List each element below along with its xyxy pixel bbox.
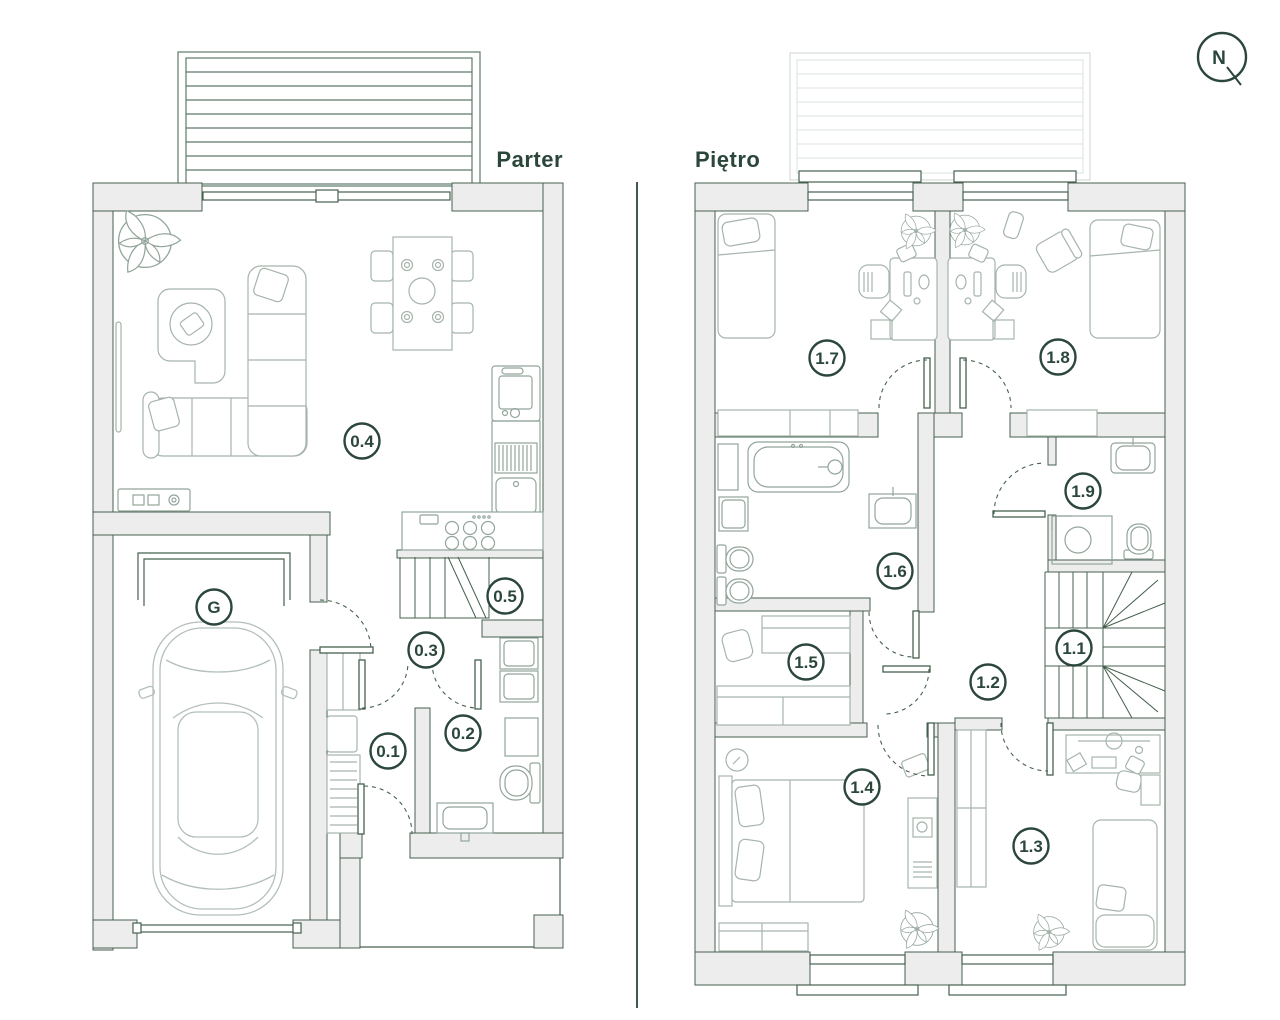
radiator [116,322,121,432]
svg-text:0.1: 0.1 [376,742,400,761]
floor-plan-canvas: 0.4 G 0.5 0.3 0.1 0.2 Parter [0,0,1280,1020]
bedroom-18 [948,210,1160,436]
svg-text:1.2: 1.2 [976,673,1000,692]
room-label-garage: G [197,590,232,625]
wardrobe [957,730,986,887]
room-label-13: 1.3 [1014,829,1049,864]
room-label-19: 1.9 [1066,474,1101,509]
door-19 [993,463,1045,517]
dining-set [371,237,473,350]
room-label-01: 0.1 [371,734,406,769]
bidet-icon [717,577,753,605]
room-label-17: 1.7 [810,341,845,376]
toilet-icon [500,763,540,803]
bed-icon [1093,820,1157,950]
desk-icon [859,243,937,340]
sink-icon [869,487,916,528]
desk-icon [948,243,1026,340]
bedroom-14 [719,749,939,951]
roof-outline [790,53,1090,180]
plant-icon [901,212,936,250]
door-01 [359,660,408,709]
terrace-sliding-door [203,190,450,202]
room-label-02: 0.2 [446,716,481,751]
parter-room-labels: 0.4 G 0.5 0.3 0.1 0.2 [197,424,523,769]
svg-text:1.4: 1.4 [850,778,874,797]
door-entry [358,784,412,834]
svg-text:1.3: 1.3 [1019,837,1043,856]
door-18 [960,358,1011,408]
room-label-18: 1.8 [1041,340,1076,375]
svg-text:0.5: 0.5 [493,587,517,606]
bed-icon [1090,220,1160,338]
svg-text:0.2: 0.2 [451,724,475,743]
wardrobe-15 [717,616,850,725]
door-garage [320,600,373,653]
car-icon [138,622,298,915]
room-label-05: 0.5 [488,579,523,614]
room-label-16: 1.6 [878,554,913,589]
floor-plan-page: 0.4 G 0.5 0.3 0.1 0.2 Parter [0,0,1280,1020]
svg-text:1.9: 1.9 [1071,482,1095,501]
room-label-04: 0.4 [345,424,380,459]
armchair-icon [1034,228,1083,275]
entry-paving-outline [360,858,563,948]
bedroom-17 [718,212,937,436]
garage-door [133,923,301,933]
floor-title-parter: Parter [496,147,563,172]
floor-title-pietro: Piętro [695,147,760,172]
door-13 [1001,723,1053,775]
washer-icon [719,497,748,531]
tv-console [118,489,190,511]
room-label-12: 1.2 [971,665,1006,700]
svg-text:0.4: 0.4 [350,432,374,451]
svg-text:1.8: 1.8 [1046,348,1070,367]
plant-icon [1034,913,1070,952]
plant-icon [119,207,182,274]
pietro-plan: 1.7 1.8 1.9 1.6 1.5 1.1 1.2 1.4 [695,53,1185,995]
svg-text:1.1: 1.1 [1062,639,1086,658]
hall-closet [327,648,360,833]
door-17 [879,358,930,408]
svg-text:1.7: 1.7 [815,349,839,368]
svg-text:G: G [207,598,220,617]
bed-icon [718,214,775,338]
bedroom-13 [957,730,1160,951]
tv-unit [908,798,937,888]
plant-icon [950,211,985,249]
compass-icon: N [1198,33,1246,85]
terrace-deck [178,52,480,186]
dresser [719,923,808,951]
bathtub-icon [748,442,849,492]
staircase [400,557,489,618]
room-label-15: 1.5 [789,645,824,680]
svg-text:N: N [1212,48,1226,69]
door-15 [883,666,930,714]
toilet-icon [717,545,753,573]
sink-icon [1111,437,1155,473]
toilet-icon [1124,524,1153,559]
plant-icon [901,908,940,949]
cooktop [402,512,543,550]
room-label-11: 1.1 [1057,631,1092,666]
parter-plan: 0.4 G 0.5 0.3 0.1 0.2 Parter [93,52,563,950]
coffee-table [158,289,225,383]
svg-text:1.5: 1.5 [794,653,818,672]
room-label-14: 1.4 [845,770,880,805]
svg-text:0.3: 0.3 [414,641,438,660]
double-bed-icon [719,776,864,906]
svg-text:1.6: 1.6 [883,562,907,581]
door-02 [432,660,481,709]
desk-icon [1066,733,1160,805]
room-label-03: 0.3 [409,633,444,668]
shower-icon [1052,516,1112,564]
door-16 [869,611,919,658]
